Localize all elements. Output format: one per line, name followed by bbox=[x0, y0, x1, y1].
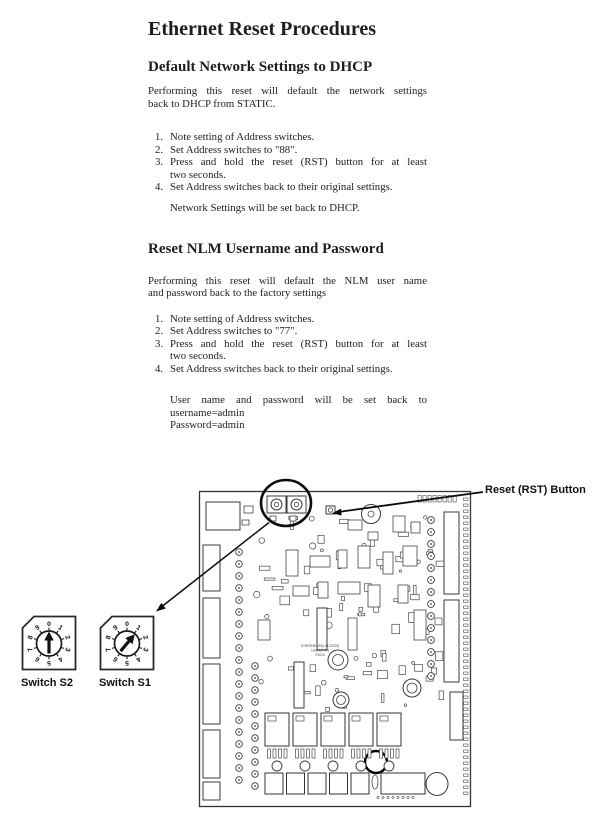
step-list-nlm: Note setting of Address switches. Set Ad… bbox=[148, 313, 427, 376]
step-number bbox=[148, 325, 170, 338]
step-item: Press and hold the reset (RST) button fo… bbox=[148, 156, 427, 181]
step-text: Set Address switches to "88". bbox=[170, 144, 297, 156]
dial-digit: 5 bbox=[125, 659, 129, 666]
dial-digit: 5 bbox=[47, 659, 51, 666]
result-line: Network Settings will be set back to DHC… bbox=[170, 202, 427, 215]
reset-button-label: Reset (RST) Button bbox=[485, 484, 586, 496]
step-item: Set Address switches back to their origi… bbox=[148, 363, 427, 376]
section-heading-dhcp: Default Network Settings to DHCP bbox=[148, 58, 427, 76]
step-text: two seconds. bbox=[170, 350, 427, 363]
step-text: Set Address switches back to their origi… bbox=[170, 181, 393, 193]
svg-text:CONTINENTAL ACCESS: CONTINENTAL ACCESS bbox=[301, 644, 340, 648]
result-line: username=admin bbox=[170, 407, 427, 420]
step-number bbox=[148, 181, 170, 194]
right-connector bbox=[444, 512, 459, 594]
step-text: Note setting of Address switches. bbox=[170, 313, 314, 325]
step-number bbox=[148, 313, 170, 326]
step-item: Set Address switches to "77". bbox=[148, 325, 427, 338]
onboard-reset-button bbox=[326, 506, 335, 514]
dial-digit: 0 bbox=[47, 621, 51, 628]
step-number bbox=[148, 338, 170, 363]
switch-s2-label: Switch S2 bbox=[21, 677, 73, 689]
terminal-strip bbox=[308, 773, 326, 794]
result-note-dhcp: Network Settings will be set back to DHC… bbox=[148, 202, 427, 215]
rotary-switch-s1: 0123456789 bbox=[99, 615, 155, 671]
intro-paragraph-nlm: Performing this reset will default the N… bbox=[148, 275, 427, 300]
dial-digit: 0 bbox=[125, 621, 129, 628]
terminal-strip bbox=[351, 773, 369, 794]
callout-arrowhead-switch bbox=[156, 603, 166, 612]
svg-text:©2014: ©2014 bbox=[315, 653, 325, 657]
page-title: Ethernet Reset Procedures bbox=[148, 17, 427, 41]
step-text: Press and hold the reset (RST) button fo… bbox=[170, 338, 427, 351]
step-item: Note setting of Address switches. bbox=[148, 313, 427, 326]
switch-s1-label: Switch S1 bbox=[99, 677, 151, 689]
step-item: Set Address switches to "88". bbox=[148, 144, 427, 157]
paragraph-line: Performing this reset will default the N… bbox=[148, 275, 427, 288]
step-item: Set Address switches back to their origi… bbox=[148, 181, 427, 194]
step-text: Set Address switches back to their origi… bbox=[170, 363, 393, 375]
step-number bbox=[148, 363, 170, 376]
result-line: Password=admin bbox=[170, 419, 427, 432]
result-note-nlm: User name and password will be set back … bbox=[148, 394, 427, 432]
intro-paragraph-dhcp: Performing this reset will default the n… bbox=[148, 85, 427, 110]
paragraph-line: Performing this reset will default the n… bbox=[148, 85, 427, 98]
step-number bbox=[148, 156, 170, 181]
step-text: Note setting of Address switches. bbox=[170, 131, 314, 143]
right-connector bbox=[444, 600, 459, 682]
step-list-dhcp: Note setting of Address switches. Set Ad… bbox=[148, 131, 427, 194]
document-page: Ethernet Reset Procedures Default Networ… bbox=[0, 0, 610, 813]
terminal-strip bbox=[287, 773, 305, 794]
step-item: Press and hold the reset (RST) button fo… bbox=[148, 338, 427, 363]
sounder-circle bbox=[426, 773, 448, 796]
pcb-illustration: CONTINENTAL ACCESS CA3XMPGR ©2014 bbox=[198, 490, 472, 808]
step-text: two seconds. bbox=[170, 169, 427, 182]
step-text: Set Address switches to "77". bbox=[170, 325, 297, 337]
paragraph-line: and password back to the factory setting… bbox=[148, 287, 427, 300]
result-line: User name and password will be set back … bbox=[170, 394, 427, 407]
text-column: Ethernet Reset Procedures Default Networ… bbox=[148, 17, 427, 432]
power-connector bbox=[450, 692, 463, 740]
step-item: Note setting of Address switches. bbox=[148, 131, 427, 144]
terminal-strip bbox=[330, 773, 348, 794]
terminal-strip bbox=[265, 773, 283, 794]
step-text: Press and hold the reset (RST) button fo… bbox=[170, 156, 427, 169]
step-number bbox=[148, 144, 170, 157]
section-heading-nlm: Reset NLM Username and Password bbox=[148, 240, 427, 258]
rotary-switch-s2: 0123456789 bbox=[21, 615, 77, 671]
step-number bbox=[148, 131, 170, 144]
paragraph-line: back to DHCP from STATIC. bbox=[148, 98, 427, 111]
